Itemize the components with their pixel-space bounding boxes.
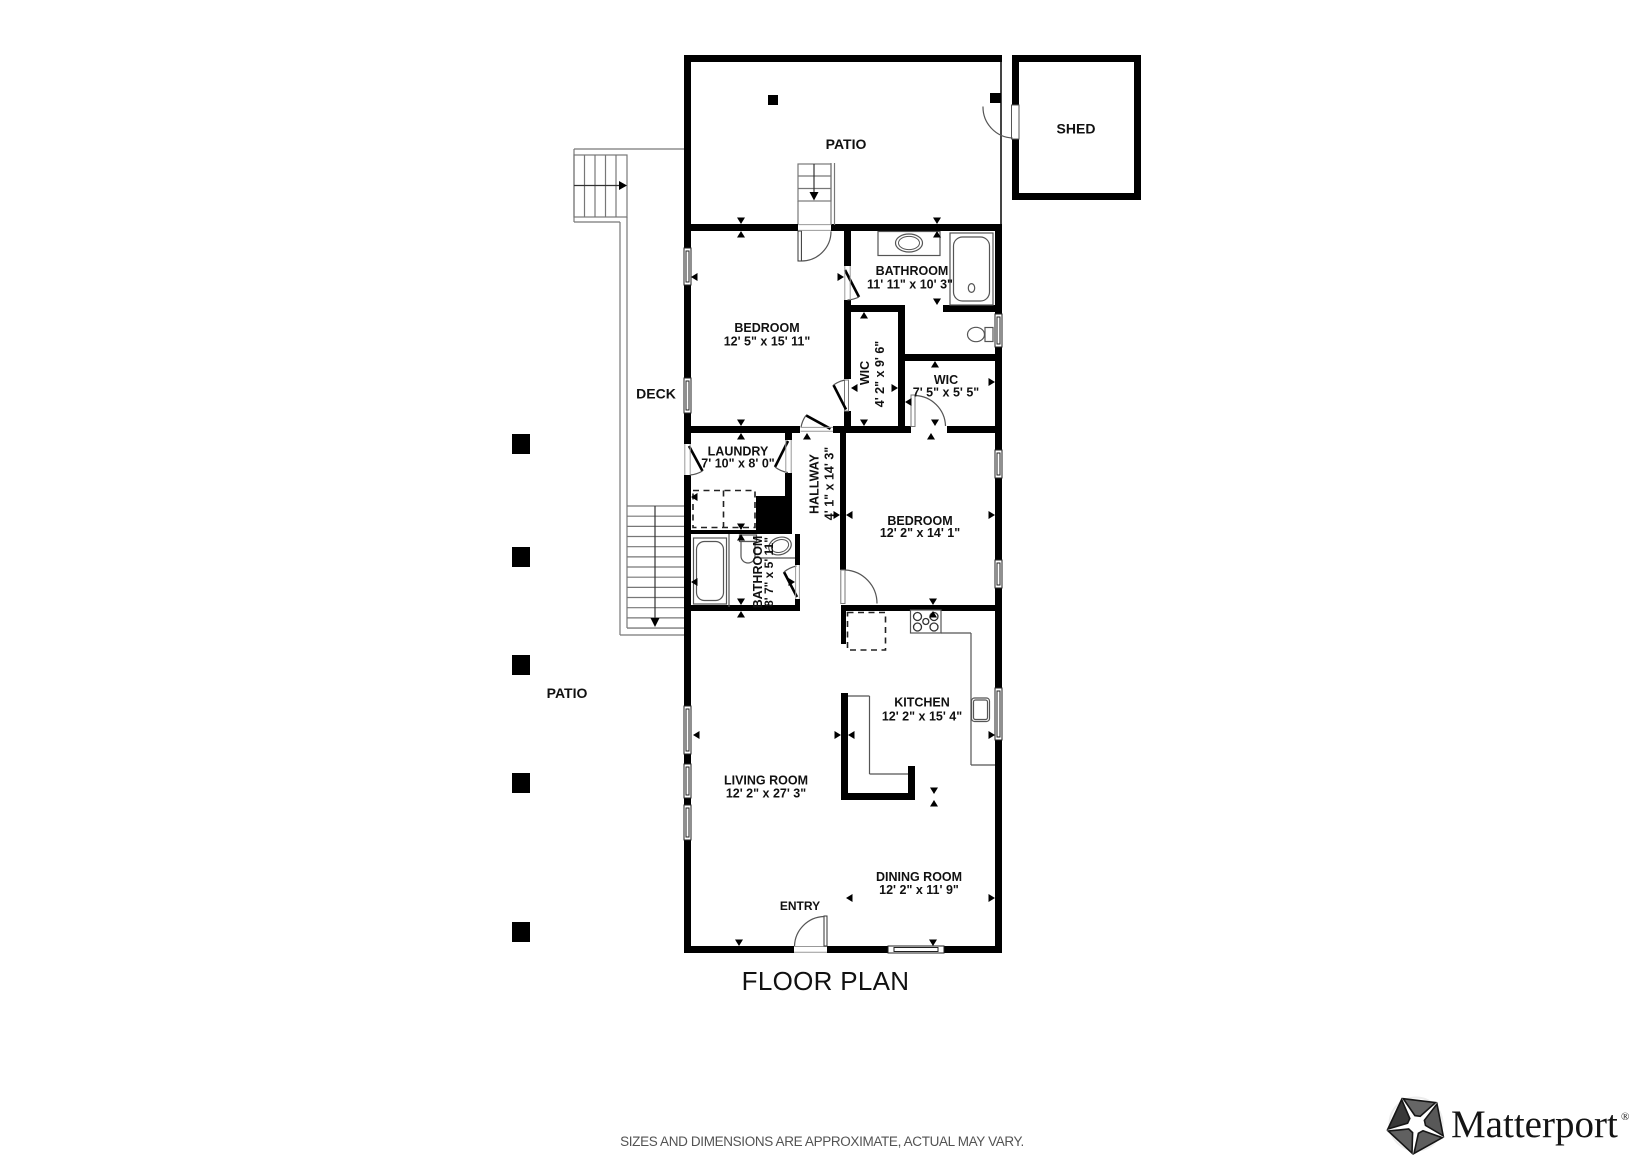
svg-text:LIVING ROOM: LIVING ROOM <box>724 774 808 788</box>
svg-text:ENTRY: ENTRY <box>780 899 820 913</box>
svg-text:12' 2" x 14' 1": 12' 2" x 14' 1" <box>880 526 960 540</box>
svg-text:7' 5" x 5' 5": 7' 5" x 5' 5" <box>913 386 980 400</box>
svg-text:12' 5" x 15' 11": 12' 5" x 15' 11" <box>724 335 811 349</box>
svg-text:8' 7" x 5' 11": 8' 7" x 5' 11" <box>762 537 776 607</box>
svg-text:KITCHEN: KITCHEN <box>894 696 950 710</box>
svg-text:BEDROOM: BEDROOM <box>734 321 799 335</box>
svg-text:®: ® <box>1621 1111 1629 1123</box>
svg-text:WIC: WIC <box>858 361 872 385</box>
svg-text:Matterport: Matterport <box>1451 1103 1618 1146</box>
svg-text:12' 2" x 27' 3": 12' 2" x 27' 3" <box>726 787 806 801</box>
svg-text:4' 2" x 9' 6": 4' 2" x 9' 6" <box>873 341 887 408</box>
svg-text:BATHROOM: BATHROOM <box>876 264 949 278</box>
svg-text:PATIO: PATIO <box>547 685 588 701</box>
svg-text:7' 10" x 8' 0": 7' 10" x 8' 0" <box>701 457 774 471</box>
svg-text:DECK: DECK <box>636 386 676 402</box>
svg-text:12' 2" x 15' 4": 12' 2" x 15' 4" <box>882 710 962 724</box>
svg-text:12' 2" x 11' 9": 12' 2" x 11' 9" <box>879 883 959 897</box>
svg-text:DINING ROOM: DINING ROOM <box>876 870 962 884</box>
svg-text:FLOOR PLAN: FLOOR PLAN <box>742 966 910 996</box>
svg-text:HALLWAY: HALLWAY <box>808 453 822 514</box>
svg-text:SIZES AND DIMENSIONS ARE APPRO: SIZES AND DIMENSIONS ARE APPROXIMATE, AC… <box>620 1134 1024 1149</box>
svg-text:SHED: SHED <box>1057 121 1096 137</box>
svg-text:4' 1" x 14' 3": 4' 1" x 14' 3" <box>823 447 837 520</box>
svg-text:11' 11" x 10' 3": 11' 11" x 10' 3" <box>867 278 953 292</box>
svg-text:PATIO: PATIO <box>826 136 867 152</box>
